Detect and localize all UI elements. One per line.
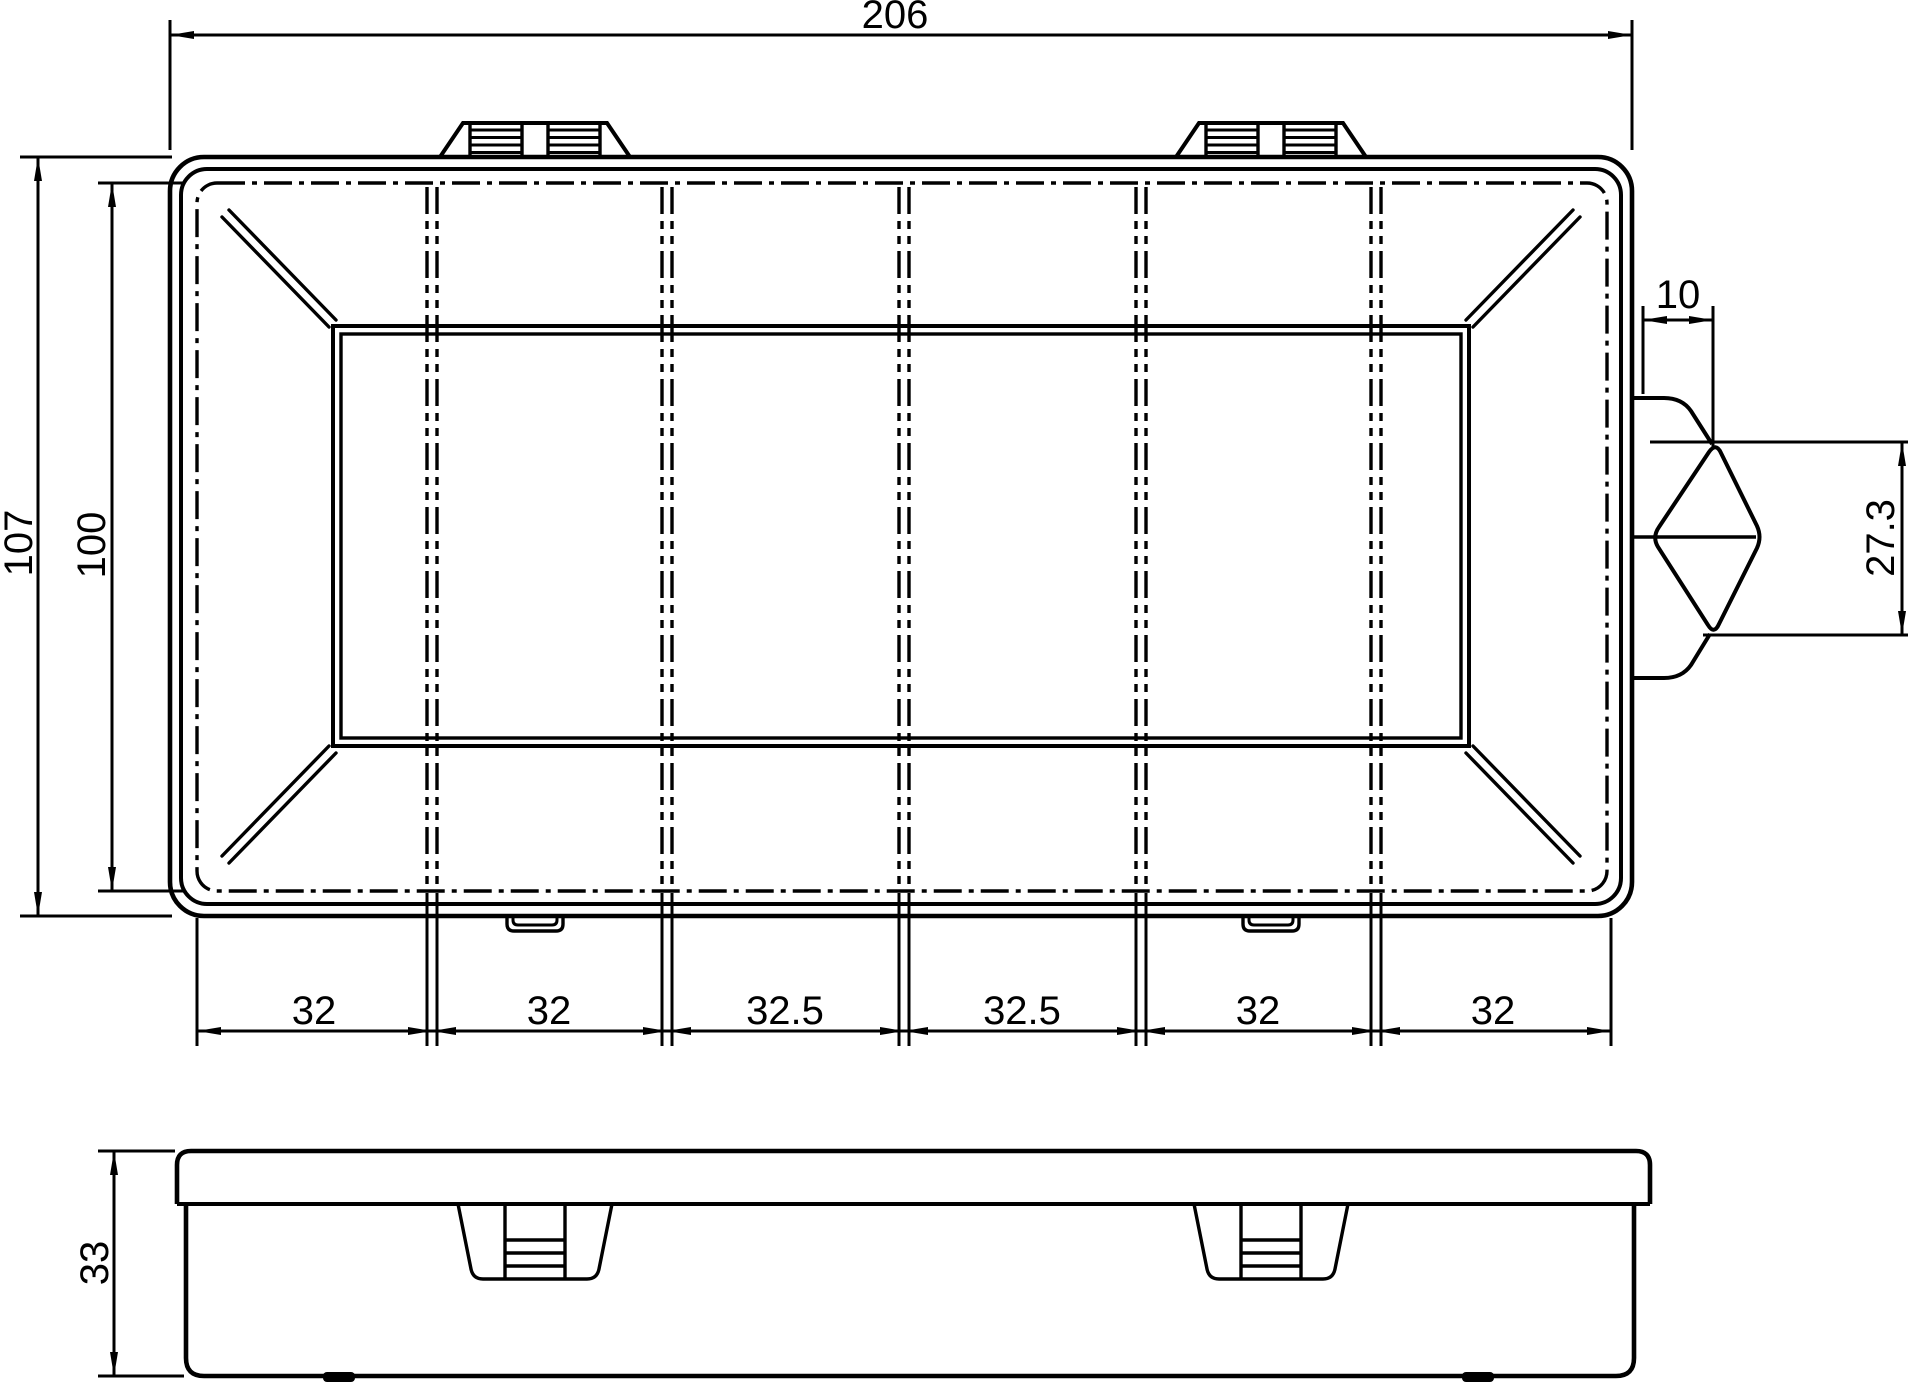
clasp-lower-flange — [1630, 634, 1710, 678]
dim-clasp-offset: 10 — [1643, 273, 1713, 448]
top-view — [170, 123, 1760, 931]
divider-5 — [1371, 187, 1381, 888]
foot-right — [1462, 1372, 1494, 1382]
dim-label-clasp-height: 27.3 — [1859, 499, 1903, 577]
side-latch-right — [1194, 1204, 1348, 1279]
chamfer-bottom-right — [1466, 746, 1580, 863]
dim-label-compartment-4: 32.5 — [983, 989, 1061, 1033]
side-lid-outline — [177, 1151, 1650, 1204]
lid-seam-centerline — [197, 183, 1607, 891]
top-latch-right — [1176, 123, 1366, 157]
side-latch-left — [458, 1204, 612, 1279]
drawing-sheet: 206 107 100 10 27.3 — [0, 0, 1912, 1392]
compartment-dividers — [427, 187, 1381, 888]
dim-label-compartment-5: 32 — [1236, 989, 1281, 1033]
top-view-outer-outline — [170, 157, 1632, 916]
top-latch-left — [440, 123, 630, 157]
divider-2 — [662, 187, 672, 888]
side-body-outline — [186, 1204, 1634, 1376]
dim-overall-width: 206 — [170, 0, 1632, 150]
foot-left — [323, 1372, 355, 1382]
technical-drawing: 206 107 100 10 27.3 — [0, 0, 1912, 1392]
top-view-inner-outline — [181, 169, 1621, 904]
dim-label-inner-height: 100 — [70, 512, 114, 579]
latch-ribs — [470, 130, 600, 153]
dim-label-overall-height: 107 — [0, 510, 41, 577]
chamfer-top-left — [222, 210, 336, 327]
dim-label-clasp-offset: 10 — [1656, 273, 1701, 317]
dim-label-compartment-1: 32 — [292, 989, 337, 1033]
dim-label-compartment-2: 32 — [527, 989, 572, 1033]
divider-4 — [1136, 187, 1146, 888]
dim-label-compartment-6: 32 — [1471, 989, 1516, 1033]
chamfer-top-right — [1466, 210, 1580, 327]
divider-3 — [899, 187, 909, 888]
tray-opening-inner — [341, 334, 1461, 738]
dim-label-overall-width: 206 — [862, 0, 929, 37]
latch-ribs — [1206, 130, 1336, 153]
side-view — [177, 1151, 1650, 1382]
dim-label-compartment-3: 32.5 — [746, 989, 824, 1033]
dim-box-height: 33 — [73, 1151, 184, 1376]
divider-1 — [427, 187, 437, 888]
dim-label-box-height: 33 — [73, 1241, 117, 1286]
clasp-upper-flange — [1630, 398, 1712, 444]
chamfer-bottom-left — [222, 746, 336, 863]
tray-opening-outer — [333, 326, 1469, 746]
